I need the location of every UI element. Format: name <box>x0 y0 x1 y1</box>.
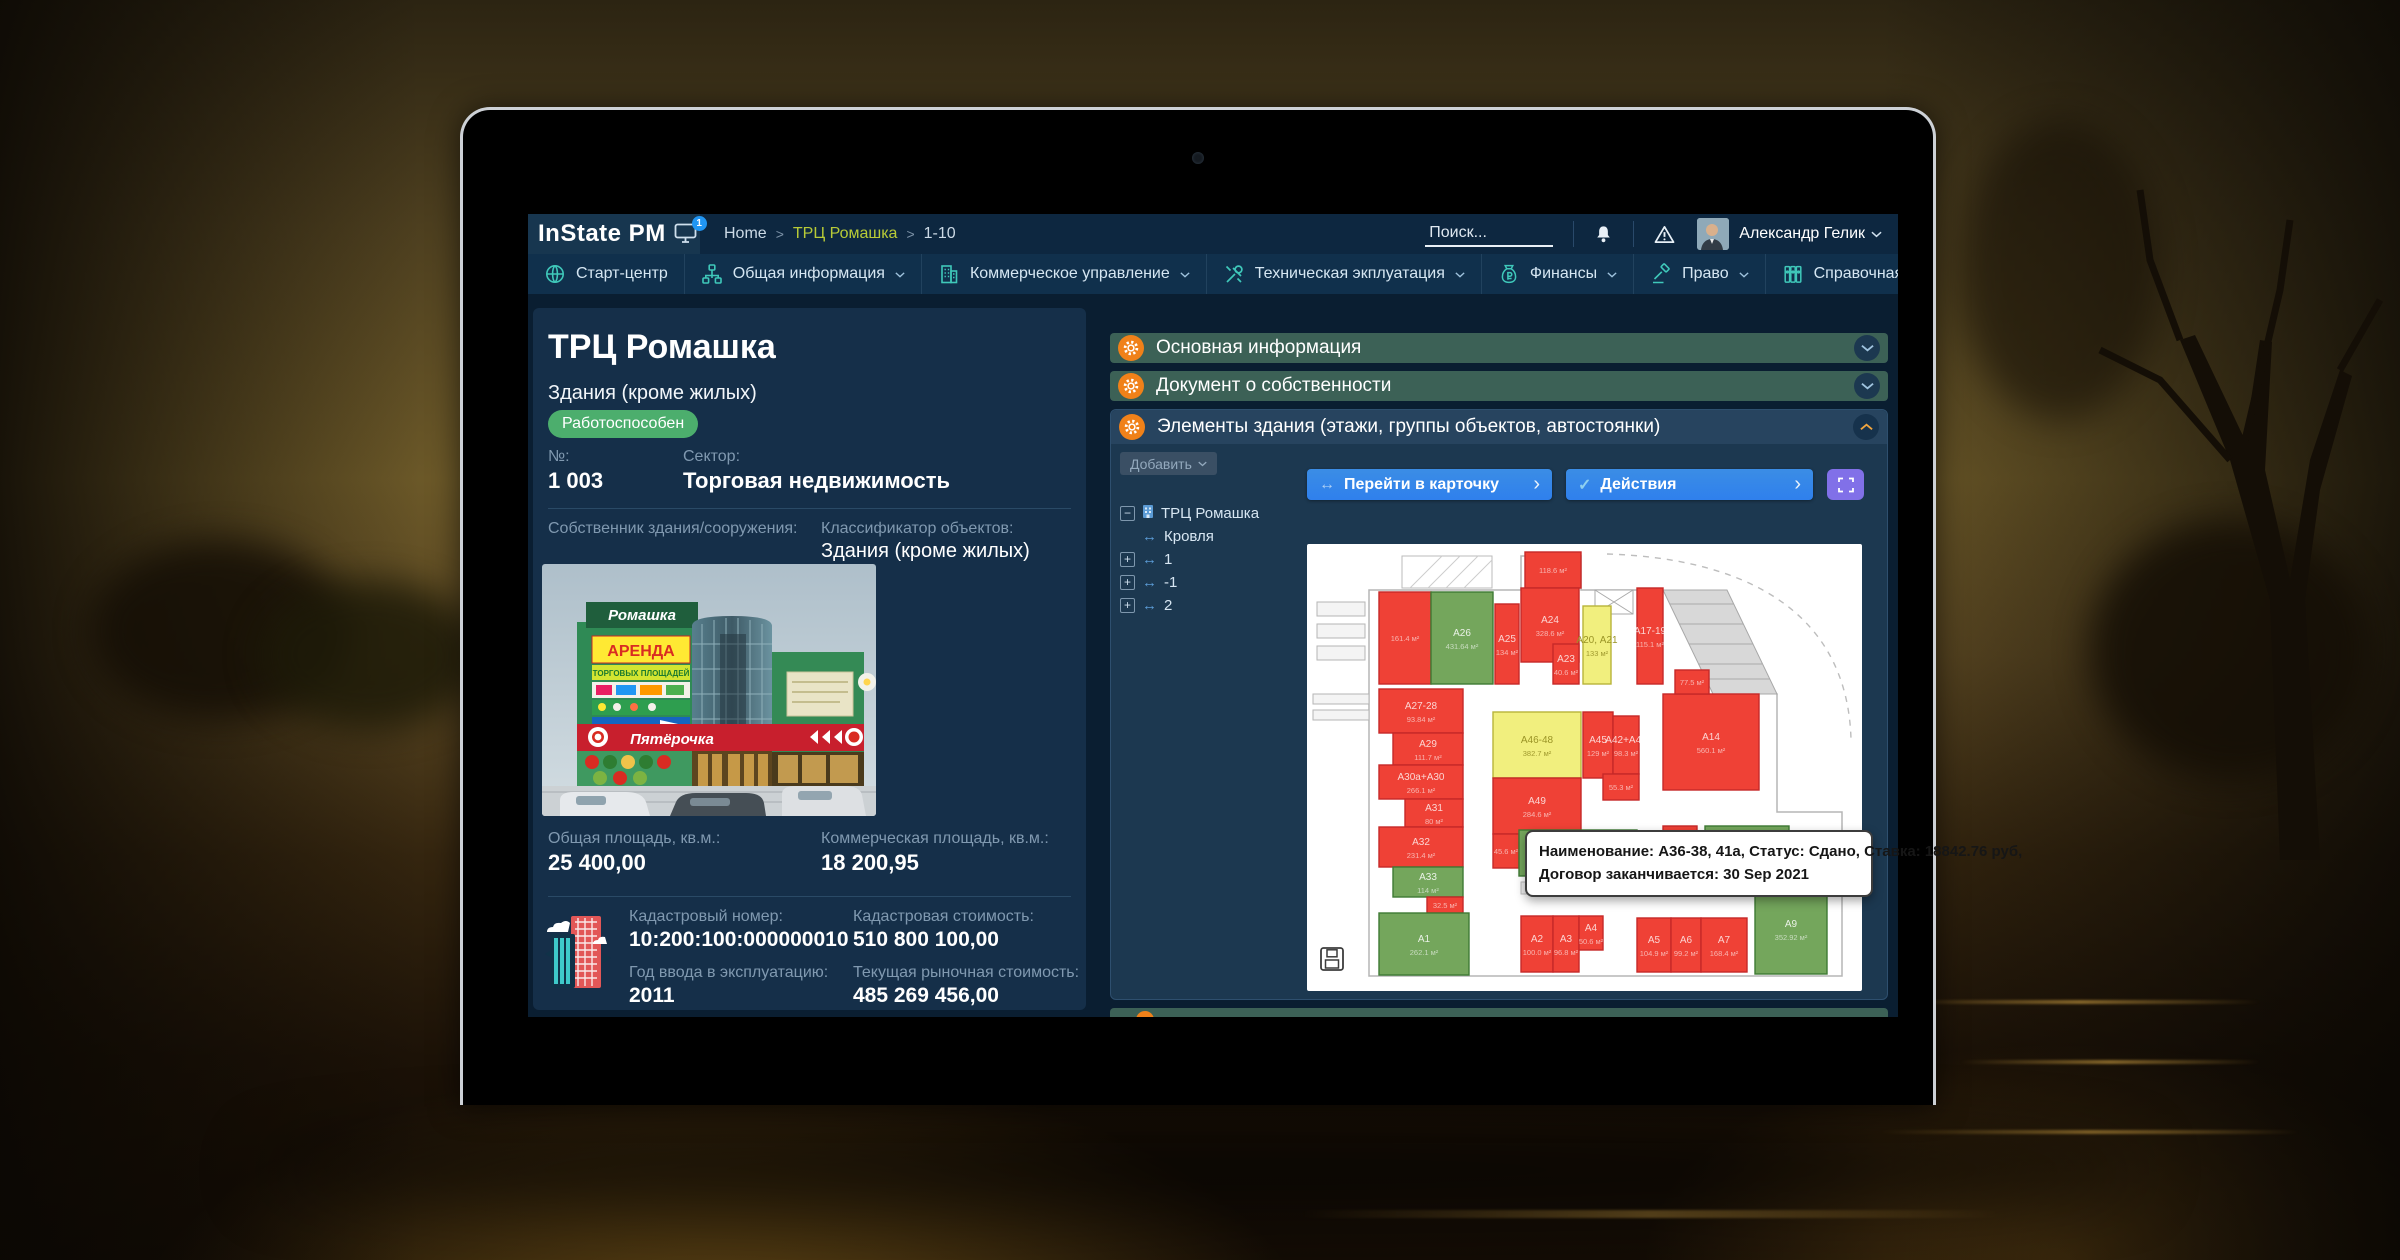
nav-item-label: Справочная информация <box>1814 265 1898 283</box>
room-label: А7 <box>1718 935 1731 946</box>
tooltip-line2: Договор заканчивается: 30 Sep 2021 <box>1539 864 1859 887</box>
room-area: 111.7 м² <box>1414 753 1442 762</box>
elements-tree: −ТРЦ Ромашка↔Кровля+↔1+↔-1+↔2 <box>1120 502 1306 617</box>
building-elements-header[interactable]: Элементы здания (этажи, группы объектов,… <box>1111 410 1887 444</box>
room-area: 129 м² <box>1587 749 1610 758</box>
books-icon <box>1782 263 1804 285</box>
breadcrumb-separator: > <box>776 226 784 242</box>
owner-label: Собственник здания/сооружения: <box>548 520 798 538</box>
section-label: Элементы здания (этажи, группы объектов,… <box>1157 416 1660 438</box>
chevron-down-icon <box>895 265 905 283</box>
divider <box>548 508 1071 509</box>
room-area: 328.6 м² <box>1536 629 1565 638</box>
expand-section-button[interactable] <box>1854 373 1880 399</box>
chevron-down-icon <box>1607 265 1617 283</box>
market-value-label: Текущая рыночная стоимость: <box>853 964 1079 982</box>
logo-block[interactable]: InState PM 1 <box>528 214 700 254</box>
room-area: 80 м² <box>1425 817 1444 826</box>
room-area: 560.1 м² <box>1697 746 1726 755</box>
breadcrumb-separator: > <box>906 226 914 242</box>
sector-value: Торговая недвижимость <box>683 468 950 494</box>
room-area: 100.0 м² <box>1523 948 1552 957</box>
room-label: А33 <box>1419 872 1437 883</box>
room-area: 104.9 м² <box>1640 949 1669 958</box>
top-bar: InState PM 1 Home>ТРЦ Ромашка>1-10 Алекс… <box>528 214 1898 254</box>
nav-item-справочная-информация[interactable]: Справочная информация <box>1766 254 1898 294</box>
room-area: 96.8 м² <box>1554 948 1579 957</box>
arrows-icon: ↔ <box>1142 551 1157 568</box>
tree-item-2[interactable]: +↔2 <box>1120 594 1306 617</box>
tree-item-label: 1 <box>1164 551 1172 568</box>
nav-item-label: Старт-центр <box>576 265 668 283</box>
nav-item-техническая-экплуатация[interactable]: Техническая экплуатация <box>1207 254 1482 294</box>
room-area: 231.4 м² <box>1407 851 1436 860</box>
chevron-down-icon <box>1861 344 1874 352</box>
room-area: 32.5 м² <box>1433 901 1458 910</box>
room-label: А17-19 <box>1634 626 1667 637</box>
room-label: А14 <box>1702 732 1720 743</box>
tree-item-label: ТРЦ Ромашка <box>1161 505 1259 522</box>
sector-label: Сектор: <box>683 448 740 466</box>
section-building-elements: Элементы здания (этажи, группы объектов,… <box>1110 409 1888 1000</box>
chevron-down-icon <box>1180 265 1190 283</box>
app-logo[interactable]: InState PM <box>538 220 666 248</box>
section-label: Основная информация <box>1156 337 1361 359</box>
tree-item-label: Кровля <box>1164 528 1214 545</box>
tree-item-трц-ромашка[interactable]: −ТРЦ Ромашка <box>1120 502 1306 525</box>
building-icon <box>938 263 960 285</box>
expand-node-button[interactable]: + <box>1120 575 1135 590</box>
add-button-label: Добавить <box>1130 456 1192 472</box>
fullscreen-icon <box>1838 477 1854 493</box>
room-label: А46-48 <box>1521 735 1554 746</box>
commercial-area-value: 18 200,95 <box>821 850 919 876</box>
expand-node-button[interactable]: + <box>1120 552 1135 567</box>
chevron-down-icon <box>1861 382 1874 390</box>
room-label: А20, А21 <box>1576 635 1618 646</box>
nav-item-старт-центр[interactable]: Старт-центр <box>528 254 685 294</box>
gear-icon <box>1119 414 1145 440</box>
room-label: А49 <box>1528 796 1546 807</box>
room-label: А32 <box>1412 837 1430 848</box>
chevron-up-icon <box>1860 423 1873 431</box>
gear-icon <box>1118 373 1144 399</box>
moneybag-icon <box>1498 263 1520 285</box>
arrows-icon: ↔ <box>1142 574 1157 591</box>
notification-badge: 1 <box>692 216 707 231</box>
expand-node-button[interactable]: + <box>1120 598 1135 613</box>
property-type: Здания (кроме жилых) <box>548 382 757 405</box>
room-area: 55.3 м² <box>1609 783 1634 792</box>
room-area: 99.2 м² <box>1674 949 1699 958</box>
gear-icon <box>1136 1011 1154 1017</box>
photo-banner-torg: ТОРГОВЫХ ПЛОЩАДЕЙ <box>593 669 690 678</box>
room-label: А25 <box>1498 634 1516 645</box>
room-area: 352.92 м² <box>1775 933 1808 942</box>
user-menu[interactable]: Александр Гелик <box>1739 225 1865 243</box>
cadastral-number-label: Кадастровый номер: <box>629 908 783 926</box>
section-main-info[interactable]: Основная информация <box>1110 333 1888 363</box>
room-area: 382.7 м² <box>1523 749 1552 758</box>
chevron-down-icon <box>1198 461 1207 467</box>
total-area-label: Общая площадь, кв.м.: <box>548 830 720 848</box>
room-area: 93.84 м² <box>1407 715 1436 724</box>
nav-item-label: Право <box>1682 265 1729 283</box>
status-badge: Работоспособен <box>548 410 698 438</box>
room-label: А31 <box>1425 803 1443 814</box>
monitor-icon[interactable]: 1 <box>674 223 700 245</box>
room-area: 168.4 м² <box>1710 949 1739 958</box>
tools-icon <box>1223 263 1245 285</box>
breadcrumb-item[interactable]: ТРЦ Ромашка <box>793 225 898 243</box>
room-label: А5 <box>1648 935 1661 946</box>
breadcrumb-item[interactable]: Home <box>724 225 767 243</box>
room-label: А9 <box>1785 919 1798 930</box>
room-area: 134 м² <box>1496 648 1519 657</box>
nav-item-label: Техническая экплуатация <box>1255 265 1445 283</box>
room-label: А2 <box>1531 934 1544 945</box>
room-area: 266.1 м² <box>1407 786 1436 795</box>
user-avatar[interactable] <box>1697 218 1729 250</box>
building-photo: Ромашка АРЕНДА ТОРГОВЫХ ПЛОЩАДЕЙ <box>542 564 876 816</box>
room-area: 262.1 м² <box>1410 948 1439 957</box>
property-card: ТРЦ Ромашка Здания (кроме жилых) Работос… <box>533 308 1086 1010</box>
actions-label: Действия <box>1600 476 1676 494</box>
collapse-section-button[interactable] <box>1853 414 1879 440</box>
room-area: 50.6 м² <box>1579 937 1604 946</box>
section-next-partial[interactable] <box>1110 1008 1888 1017</box>
page-title: ТРЦ Ромашка <box>548 328 776 367</box>
check-icon: ✓ <box>1578 475 1591 495</box>
divider <box>548 896 1071 897</box>
room-area: 431.64 м² <box>1446 642 1479 651</box>
room-area: 161.4 м² <box>1391 634 1420 643</box>
sitemap-icon <box>701 263 723 285</box>
tree-item-кровля[interactable]: ↔Кровля <box>1120 525 1306 548</box>
nav-item-общая-информация[interactable]: Общая информация <box>685 254 922 294</box>
year-value: 2011 <box>629 984 675 1008</box>
goto-card-label: Перейти в карточку <box>1344 476 1499 494</box>
tooltip-line1: Наименование: А36-38, 41а, Статус: Сдано… <box>1539 841 1859 864</box>
nav-item-коммерческое-управление[interactable]: Коммерческое управление <box>922 254 1207 294</box>
search-input[interactable] <box>1425 222 1553 247</box>
warning-icon[interactable] <box>1654 225 1675 244</box>
number-value: 1 003 <box>548 468 603 494</box>
building-icon <box>1142 504 1154 524</box>
nav-item-label: Коммерческое управление <box>970 265 1170 283</box>
room-label: А23 <box>1557 654 1575 665</box>
room-label: А4 <box>1585 923 1598 934</box>
room-area: 40.6 м² <box>1554 668 1579 677</box>
chevron-down-icon <box>1739 265 1749 283</box>
plan-toolbar: ↔ Перейти в карточку › ✓ Действия › <box>1307 469 1864 500</box>
room-area: 118.6 м² <box>1539 566 1567 575</box>
nav-item-label: Финансы <box>1530 265 1597 283</box>
room-area: 45.6 м² <box>1494 847 1519 856</box>
webcam-dot <box>1192 152 1204 164</box>
chevron-down-icon <box>1871 231 1882 238</box>
main-nav: Старт-центрОбщая информацияКоммерческое … <box>528 254 1898 294</box>
classifier-value: Здания (кроме жилых) <box>821 540 1030 563</box>
cadastral-value-label: Кадастровая стоимость: <box>853 908 1034 926</box>
room-label: А30а+А30 <box>1398 772 1445 783</box>
gavel-icon <box>1650 263 1672 285</box>
commercial-area-label: Коммерческая площадь, кв.м.: <box>821 830 1049 848</box>
room-label: А24 <box>1541 615 1559 626</box>
expand-section-button[interactable] <box>1854 335 1880 361</box>
room-label: А29 <box>1419 739 1437 750</box>
laptop-shadow <box>260 1125 2140 1215</box>
goto-card-button[interactable]: ↔ Перейти в карточку › <box>1307 469 1552 500</box>
page-content: ТРЦ Ромашка Здания (кроме жилых) Работос… <box>528 294 1898 1017</box>
chevron-right-icon: › <box>1533 473 1540 496</box>
divider <box>1633 221 1634 247</box>
room-area: 115.1 м² <box>1636 640 1664 649</box>
section-label: Документ о собственности <box>1156 375 1391 397</box>
photo-store-sign: Пятёрочка <box>630 731 714 748</box>
room-label: А27-28 <box>1405 701 1438 712</box>
room-tooltip: Наименование: А36-38, 41а, Статус: Сдано… <box>1525 830 1873 897</box>
arrows-icon: ↔ <box>1142 528 1157 545</box>
room-area: 98.3 м² <box>1614 749 1639 758</box>
nav-item-право[interactable]: Право <box>1634 254 1766 294</box>
tree-item--1[interactable]: +↔-1 <box>1120 571 1306 594</box>
classifier-label: Классификатор объектов: <box>821 520 1013 538</box>
tree-item-label: -1 <box>1164 574 1177 591</box>
add-button[interactable]: Добавить <box>1120 452 1217 475</box>
topbar-right: Александр Гелик <box>1425 218 1898 250</box>
nav-item-label: Общая информация <box>733 265 885 283</box>
arrows-icon: ↔ <box>1319 476 1335 494</box>
floor-plan[interactable]: 118.6 м²161.4 м²А26431.64 м²А25134 м²А24… <box>1307 544 1862 991</box>
room-area: 133 м² <box>1586 649 1609 658</box>
nav-item-финансы[interactable]: Финансы <box>1482 254 1634 294</box>
collapse-node-button[interactable]: − <box>1120 506 1135 521</box>
actions-button[interactable]: ✓ Действия › <box>1566 469 1813 500</box>
section-ownership-doc[interactable]: Документ о собственности <box>1110 371 1888 401</box>
fullscreen-button[interactable] <box>1827 469 1864 500</box>
tree-item-label: 2 <box>1164 597 1172 614</box>
cadastral-value-value: 510 800 100,00 <box>853 928 999 952</box>
room-area: 114 м² <box>1417 886 1439 895</box>
room-label: А26 <box>1453 628 1471 639</box>
total-area-value: 25 400,00 <box>548 850 646 876</box>
room-label: А42+А43 <box>1605 735 1647 746</box>
cadastral-number-value: 10:200:100:000000010 <box>629 928 849 952</box>
photo-roof-sign: Ромашка <box>608 607 676 624</box>
room-label: А1 <box>1418 934 1431 945</box>
number-label: №: <box>548 448 570 466</box>
room-label: А3 <box>1560 934 1573 945</box>
breadcrumb: Home>ТРЦ Ромашка>1-10 <box>724 225 956 243</box>
save-plan-icon[interactable] <box>1321 948 1343 970</box>
year-label: Год ввода в эксплуатацию: <box>629 964 828 982</box>
globe-icon <box>544 263 566 285</box>
chevron-right-icon: › <box>1794 473 1801 496</box>
instate-pm-app: InState PM 1 Home>ТРЦ Ромашка>1-10 Алекс… <box>528 214 1898 1017</box>
bell-icon[interactable] <box>1594 224 1613 245</box>
photo-banner-arenda: АРЕНДА <box>607 643 675 660</box>
market-value-value: 485 269 456,00 <box>853 984 999 1008</box>
buildings-icon <box>545 910 611 999</box>
gear-icon <box>1118 335 1144 361</box>
arrows-icon: ↔ <box>1142 597 1157 614</box>
room-area: 284.6 м² <box>1523 810 1552 819</box>
tree-item-1[interactable]: +↔1 <box>1120 548 1306 571</box>
room-label: А6 <box>1680 935 1693 946</box>
tree-silhouette <box>1980 40 2400 860</box>
room-area: 77.5 м² <box>1680 678 1705 687</box>
breadcrumb-item[interactable]: 1-10 <box>924 225 956 243</box>
chevron-down-icon <box>1455 265 1465 283</box>
divider <box>1573 221 1574 247</box>
